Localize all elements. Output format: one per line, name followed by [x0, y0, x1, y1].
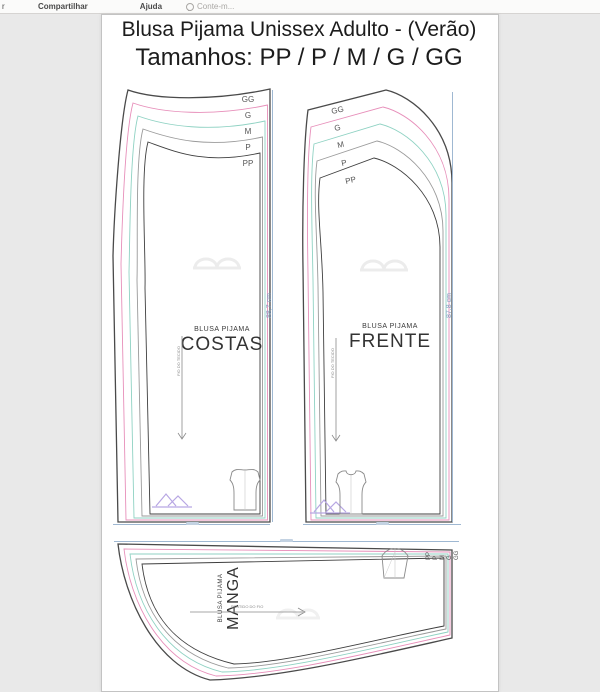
manga-piece-name: MANGA: [225, 566, 242, 630]
app-toolbar: r Compartilhar Ajuda Conte-m...: [0, 0, 600, 14]
manga-brand-label: BLUSA PIJAMA: [218, 574, 224, 623]
pattern-piece-manga: BLUSA PIJAMA MANGA SENTIDO DO FIO PP P M…: [110, 538, 464, 688]
help-button[interactable]: Ajuda: [134, 2, 168, 11]
tell-me-label: Conte-m...: [197, 2, 234, 11]
frente-height-dimension-label: 87,8 cm: [446, 293, 453, 318]
manga-size-label-gg: GG: [454, 550, 460, 560]
manga-size-label-pp: PP: [426, 552, 432, 560]
frente-piece-name: FRENTE: [349, 331, 431, 352]
lightbulb-icon: [186, 3, 194, 11]
costas-outline-gg: [113, 89, 270, 522]
costas-brand-label: BLUSA PIJAMA: [194, 326, 250, 333]
costas-width-dimension-text: [186, 522, 199, 525]
manga-size-label-m: M: [440, 555, 446, 560]
pattern-piece-frente: GG G M P PP BLUSA PIJAMA FRENTE FIO DO T…: [300, 88, 464, 528]
manga-size-label-g: G: [447, 555, 453, 560]
toolbar-item-fragment[interactable]: r: [0, 2, 26, 11]
page-title: Blusa Pijama Unissex Adulto - (Verão): [101, 18, 497, 42]
pattern-piece-costas: GG G M P PP BLUSA PIJAMA COSTAS FIO DO T…: [110, 86, 274, 528]
costas-size-label-pp: PP: [243, 159, 254, 168]
page-subtitle: Tamanhos: PP / P / M / G / GG: [101, 44, 497, 72]
costas-height-dimension-label: 88,7 cm: [266, 293, 273, 318]
costas-size-label-p: P: [245, 143, 250, 152]
share-button[interactable]: Compartilhar: [32, 2, 94, 11]
frente-brand-label: BLUSA PIJAMA: [362, 323, 418, 330]
costas-grain-label: FIO DO TECIDO: [176, 346, 181, 376]
tell-me-button[interactable]: Conte-m...: [186, 2, 234, 11]
manga-width-dimension-text: [280, 539, 293, 542]
costas-piece-name: COSTAS: [181, 334, 264, 355]
costas-size-label-g: G: [245, 111, 251, 120]
costas-size-label-m: M: [245, 127, 252, 136]
frente-width-dimension-text: [376, 522, 389, 525]
manga-grain-label: SENTIDO DO FIO: [231, 604, 264, 609]
frente-grain-label: FIO DO TECIDO: [330, 348, 335, 378]
costas-size-label-gg: GG: [242, 95, 254, 104]
manga-size-label-p: P: [433, 556, 439, 560]
